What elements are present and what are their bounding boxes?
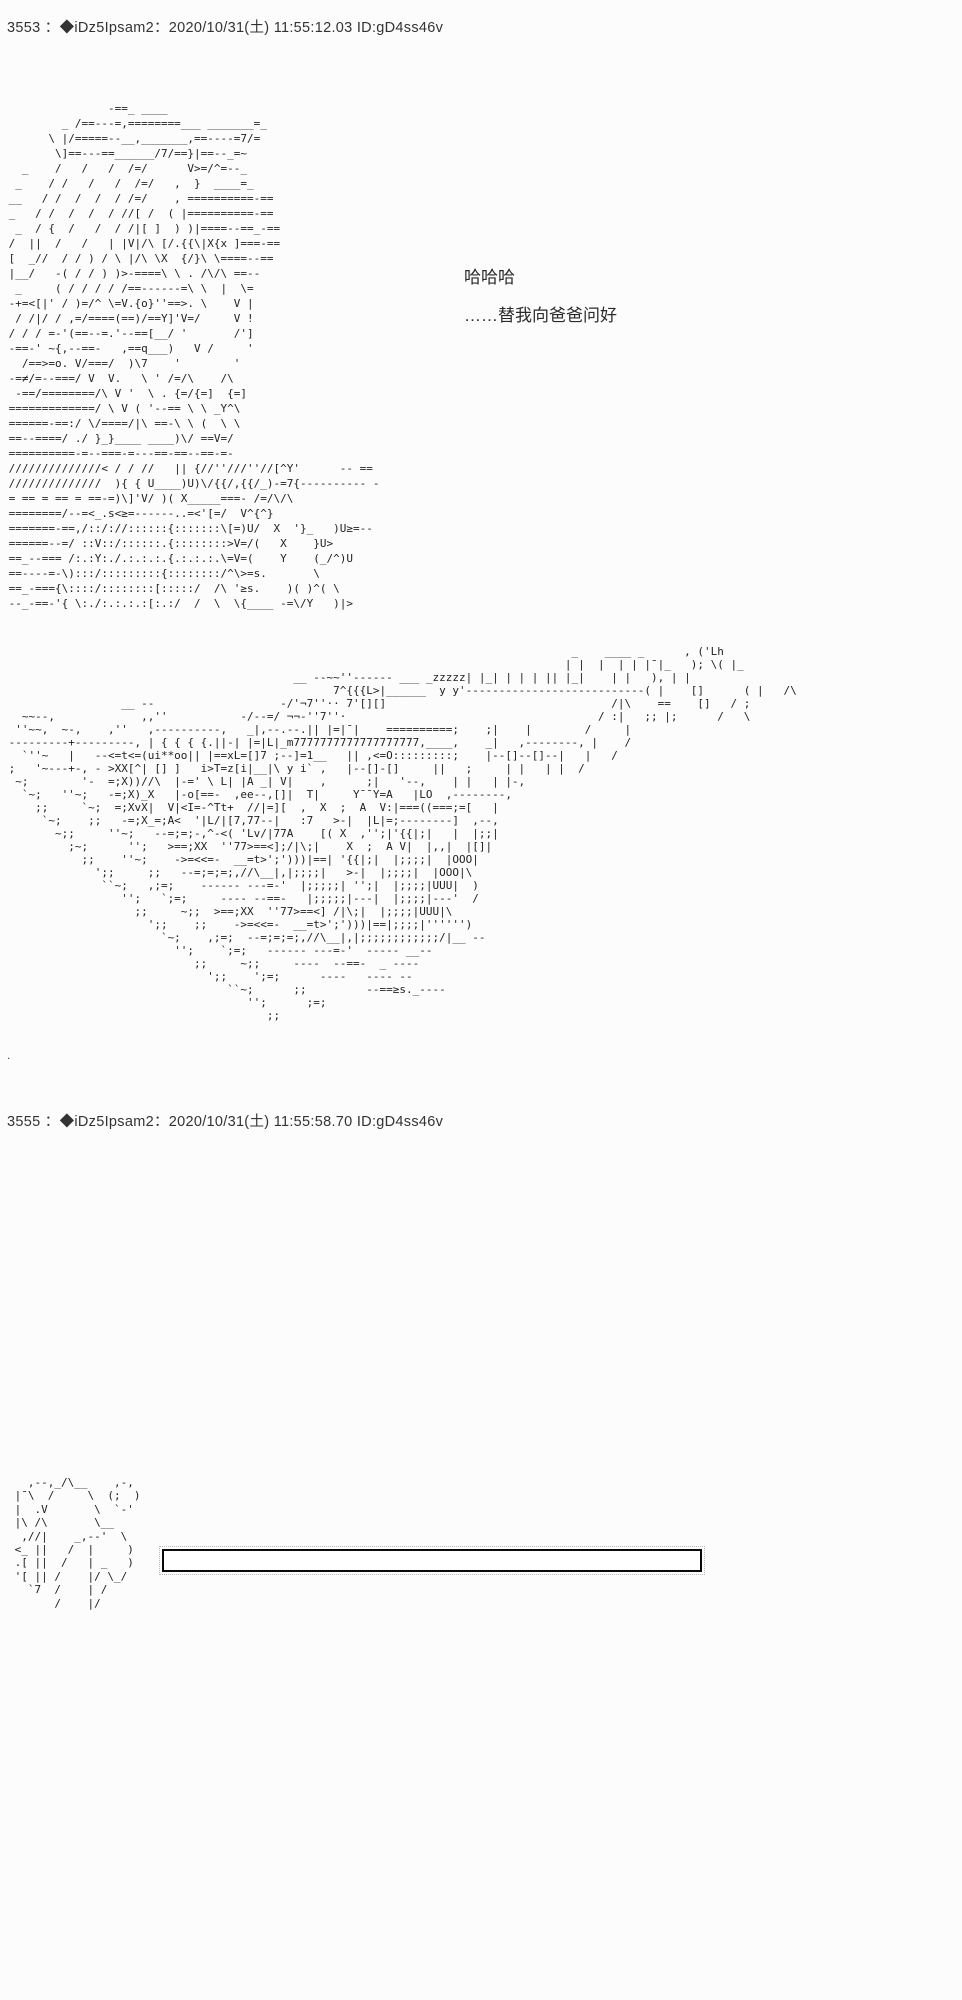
dialogue-line-2: ……替我向爸爸问好: [464, 301, 617, 326]
blank-text-box: [162, 1549, 702, 1572]
dialogue-line-1: 哈哈哈: [464, 263, 515, 288]
post-header-3553: 3553 ：◆iDz5Ipsam2：2020/10/31(土) 11:55:12…: [7, 16, 443, 37]
aa-art-character: -==_ ____ _ /==---=,========___ _______=…: [2, 101, 380, 611]
aa-art-mascot: ,--,_/\__ ,-, |¯\ / \ (; ) | .V \ `-' |\…: [8, 1476, 140, 1610]
post-header-3555: 3555 ：◆iDz5Ipsam2：2020/10/31(土) 11:55:58…: [7, 1110, 443, 1131]
aa-art-train: _ ____ _ , ('Lh | | | | | |¯|_ ); \( |_ …: [2, 645, 797, 1022]
separator-dot: .: [7, 1048, 10, 1062]
